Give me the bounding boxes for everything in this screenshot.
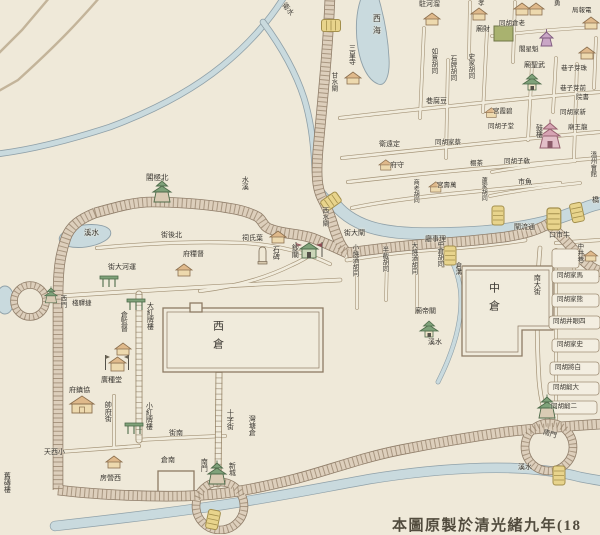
historical-city-map: 衛水閣極北水溪溪水街後北祠氏葉石碑鈔關西水閘甘水閘西海三皇寺街大河運府糧督西門棧… [0,0,600,534]
arch-icon [100,276,118,287]
bridge-icon [553,466,565,485]
bridge-icon [444,246,456,265]
bridge-icon [547,208,561,230]
arch-icon [125,423,143,434]
bridge-icon [492,206,504,225]
greensq-icon [494,26,513,41]
map-artwork [0,0,600,534]
bridge-icon [322,20,341,32]
west-granary-compound [163,308,323,372]
south-granary-compound [158,471,194,493]
stele-icon [258,247,267,264]
arch-icon [127,299,145,310]
